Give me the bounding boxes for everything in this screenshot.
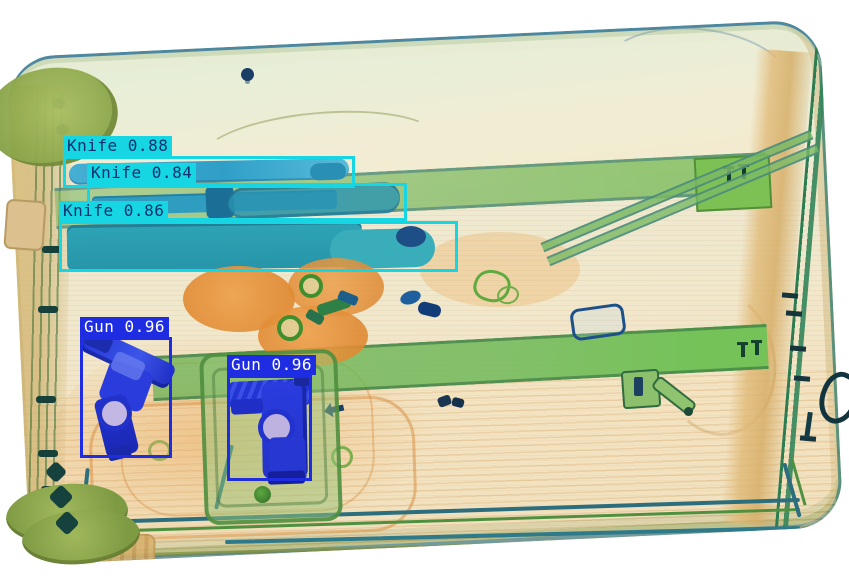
green-grommet (299, 274, 323, 298)
pen-tip (684, 407, 693, 416)
suitcase-shell (6, 19, 843, 565)
detection-box (59, 221, 458, 272)
detection-label: Gun 0.96 (227, 355, 316, 375)
buckle-pin-head (751, 340, 762, 343)
gun-case-ball (254, 486, 271, 503)
green-box-slot (634, 377, 643, 396)
detection-label: Gun 0.96 (80, 317, 169, 337)
rivet-item (241, 68, 254, 81)
frame-bolt (38, 450, 58, 457)
xray-scan-image: Knife 0.88 Knife 0.84 Knife 0.86 Gun 0.9… (0, 0, 849, 585)
suitcase-interior (6, 19, 843, 565)
buckle-pin (755, 342, 759, 355)
detection-box (227, 375, 312, 481)
detection-box (80, 337, 172, 458)
frame-bolt (36, 396, 56, 403)
buckle-pin-head (737, 342, 748, 345)
detection-label: Knife 0.86 (59, 201, 168, 221)
buckle-pin (741, 344, 745, 357)
green-grommet (277, 315, 303, 341)
detection-label: Knife 0.88 (63, 136, 172, 156)
side-tab (3, 199, 46, 252)
detection-label: Knife 0.84 (87, 163, 196, 183)
frame-bolt (38, 306, 58, 313)
